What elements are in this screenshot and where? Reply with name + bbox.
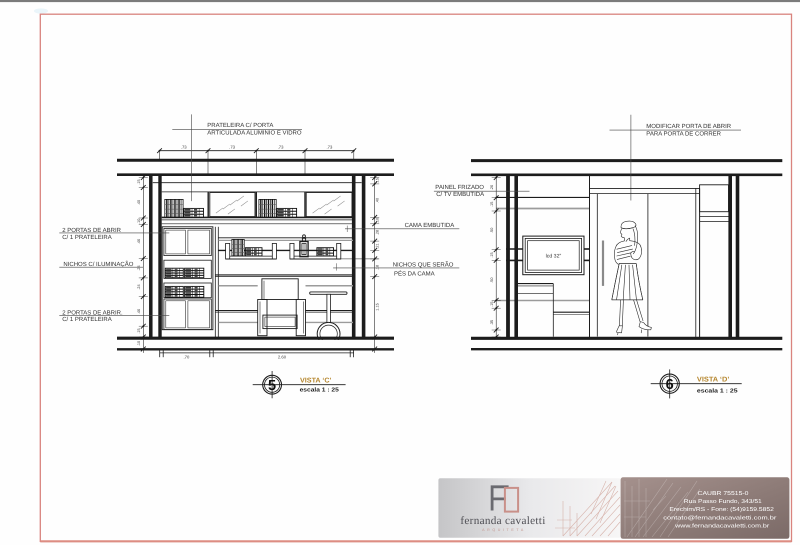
svg-text:PÉS DA CAMA: PÉS DA CAMA (394, 270, 435, 278)
svg-text:.50: .50 (490, 278, 494, 283)
svg-text:.15: .15 (490, 202, 494, 207)
svg-text:.40: .40 (375, 198, 379, 203)
svg-text:contato@fernandacavaletti.com.: contato@fernandacavaletti.com.br (663, 514, 776, 521)
svg-text:CAUBR 75515-0: CAUBR 75515-0 (698, 491, 749, 497)
svg-text:.73: .73 (229, 144, 235, 149)
svg-text:.15: .15 (490, 302, 494, 307)
svg-text:NICHOS C/ ILUMINAÇÃO: NICHOS C/ ILUMINAÇÃO (63, 260, 133, 268)
svg-text:.15: .15 (375, 178, 379, 183)
svg-text:escala 1 : 25: escala 1 : 25 (697, 388, 739, 395)
svg-text:PAINEL FRIZADO: PAINEL FRIZADO (435, 184, 484, 191)
svg-text:.35: .35 (490, 320, 494, 325)
svg-text:.26: .26 (490, 185, 494, 190)
svg-text:escala 1 : 25: escala 1 : 25 (300, 387, 340, 394)
svg-text:VISTA ‘D’: VISTA ‘D’ (697, 376, 730, 383)
svg-text:.24: .24 (137, 265, 141, 270)
svg-text:5: 5 (268, 378, 276, 394)
svg-text:.73: .73 (181, 144, 187, 149)
svg-text:C/ 1 PRATELEIRA: C/ 1 PRATELEIRA (62, 316, 112, 323)
svg-text:Erechim/RS - Fone: (54)9159.: Erechim/RS - Fone: (54)9159.5852 (669, 506, 774, 513)
svg-text:2.60: 2.60 (278, 355, 287, 360)
svg-text:.15: .15 (490, 252, 494, 257)
svg-text:fernanda cavaletti: fernanda cavaletti (460, 515, 545, 527)
svg-text:PRATELEIRA C/ PORTA: PRATELEIRA C/ PORTA (207, 122, 273, 129)
svg-text:.40: .40 (137, 200, 141, 205)
svg-text:ARTICULADA ALUMINIO E VIDRO: ARTICULADA ALUMINIO E VIDRO (207, 130, 302, 137)
svg-text:MODIFICAR PORTA DE ABRIR: MODIFICAR PORTA DE ABRIR (646, 123, 731, 130)
svg-text:.46: .46 (137, 239, 141, 244)
svg-text:.70: .70 (183, 355, 189, 360)
svg-text:.46: .46 (137, 309, 141, 314)
svg-text:.18: .18 (375, 265, 379, 270)
svg-text:C/ 1 PRATELEIRA: C/ 1 PRATELEIRA (62, 234, 112, 241)
svg-text:ARQUITETA: ARQUITETA (482, 528, 526, 532)
svg-text:.10: .10 (137, 219, 141, 224)
svg-text:.28: .28 (375, 230, 379, 235)
svg-text:.21: .21 (375, 243, 379, 248)
svg-text:2 PORTAS DE ABRIR.: 2 PORTAS DE ABRIR. (62, 309, 123, 316)
svg-text:.15: .15 (137, 179, 141, 184)
svg-text:lcd 32”: lcd 32” (546, 253, 562, 259)
svg-text:www.fernandacavaletti.com.br: www.fernandacavaletti.com.br (674, 523, 769, 530)
svg-text:PARA PORTA DE CORRER: PARA PORTA DE CORRER (646, 130, 721, 137)
svg-text:.10: .10 (137, 341, 141, 346)
svg-text:CAMA EMBUTIDA: CAMA EMBUTIDA (405, 222, 455, 229)
svg-text:1.15: 1.15 (375, 303, 379, 310)
svg-text:NICHOS QUE SERÃO: NICHOS QUE SERÃO (393, 261, 454, 269)
svg-text:Rua Passo Fundo, 343/51: Rua Passo Fundo, 343/51 (684, 498, 762, 505)
svg-text:.73: .73 (278, 144, 284, 149)
svg-text:VISTA ‘C’: VISTA ‘C’ (300, 377, 332, 384)
svg-text:.24: .24 (137, 284, 141, 289)
svg-text:C/ TV EMBUTIDA: C/ TV EMBUTIDA (436, 191, 484, 198)
svg-text:6: 6 (666, 377, 674, 393)
svg-text:.10: .10 (375, 218, 379, 223)
svg-text:.15: .15 (137, 328, 141, 333)
svg-text:.73: .73 (326, 144, 332, 149)
svg-text:.50: .50 (490, 228, 494, 233)
